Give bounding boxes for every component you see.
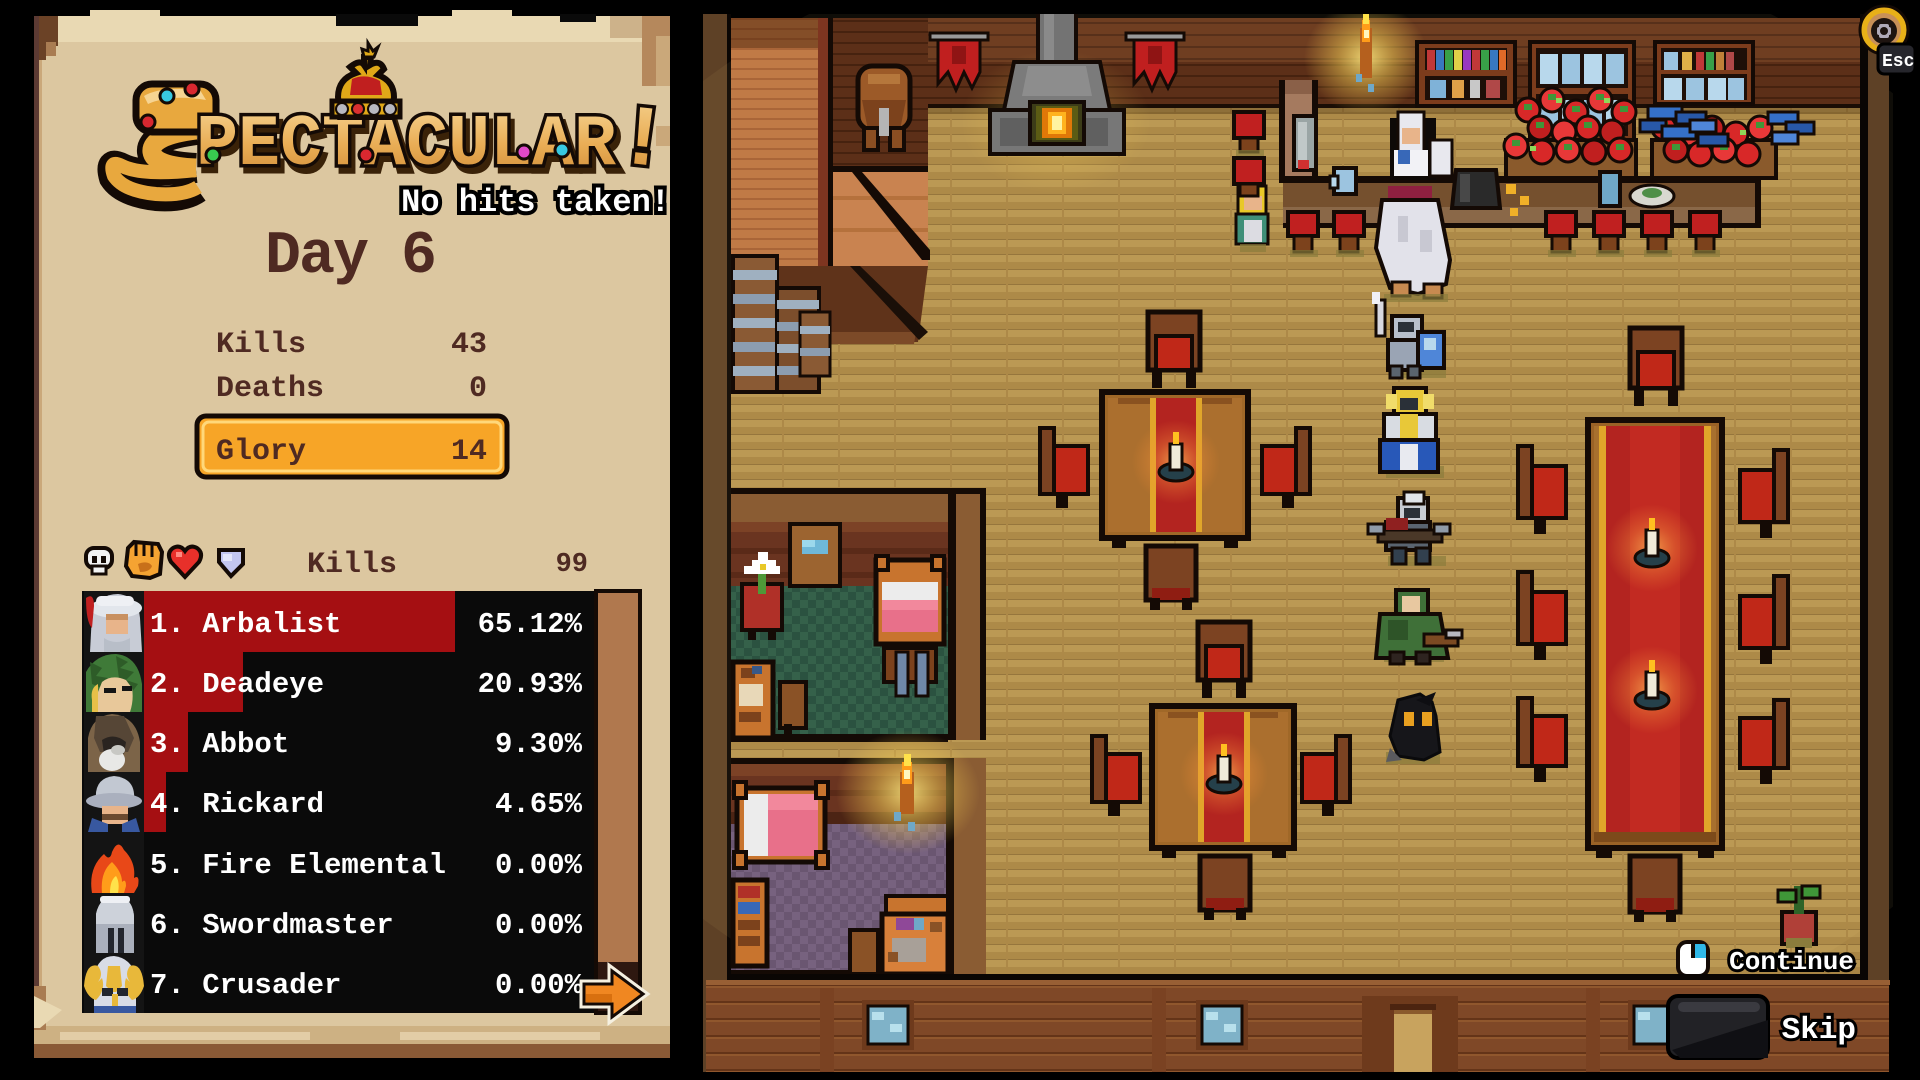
svg-text:0: 0 [469, 372, 487, 406]
svg-text:Kills: Kills [216, 328, 306, 362]
svg-text:4.65%: 4.65% [495, 788, 583, 821]
svg-text:43: 43 [451, 328, 487, 362]
svg-text:6. Swordmaster: 6. Swordmaster [150, 909, 394, 942]
svg-text:Continue: Continue [1729, 947, 1854, 977]
svg-text:Skip: Skip [1782, 1013, 1856, 1048]
svg-text:PECTACULAR: PECTACULAR [196, 104, 617, 186]
svg-text:Deaths: Deaths [216, 372, 324, 406]
svg-text:No hits taken!: No hits taken! [401, 184, 670, 221]
svg-text:0.00%: 0.00% [495, 969, 583, 1002]
svg-text:1. Arbalist: 1. Arbalist [150, 608, 341, 641]
svg-text:0.00%: 0.00% [495, 909, 583, 942]
svg-text:3. Abbot: 3. Abbot [150, 728, 289, 761]
svg-text:Esc: Esc [1882, 52, 1914, 72]
svg-text:99: 99 [556, 550, 588, 580]
svg-text:9.30%: 9.30% [495, 728, 583, 761]
svg-text:Day 6: Day 6 [265, 223, 435, 291]
svg-text:2. Deadeye: 2. Deadeye [150, 668, 324, 701]
svg-text:Kills: Kills [307, 548, 397, 582]
svg-text:0.00%: 0.00% [495, 849, 583, 882]
svg-text:14: 14 [451, 435, 487, 469]
svg-text:20.93%: 20.93% [478, 668, 583, 701]
svg-text:5. Fire Elemental: 5. Fire Elemental [150, 849, 446, 882]
svg-text:!: ! [612, 90, 674, 193]
svg-text:7. Crusader: 7. Crusader [150, 969, 341, 1002]
svg-text:65.12%: 65.12% [478, 608, 583, 641]
svg-text:4. Rickard: 4. Rickard [150, 788, 324, 821]
svg-text:Glory: Glory [216, 435, 306, 469]
